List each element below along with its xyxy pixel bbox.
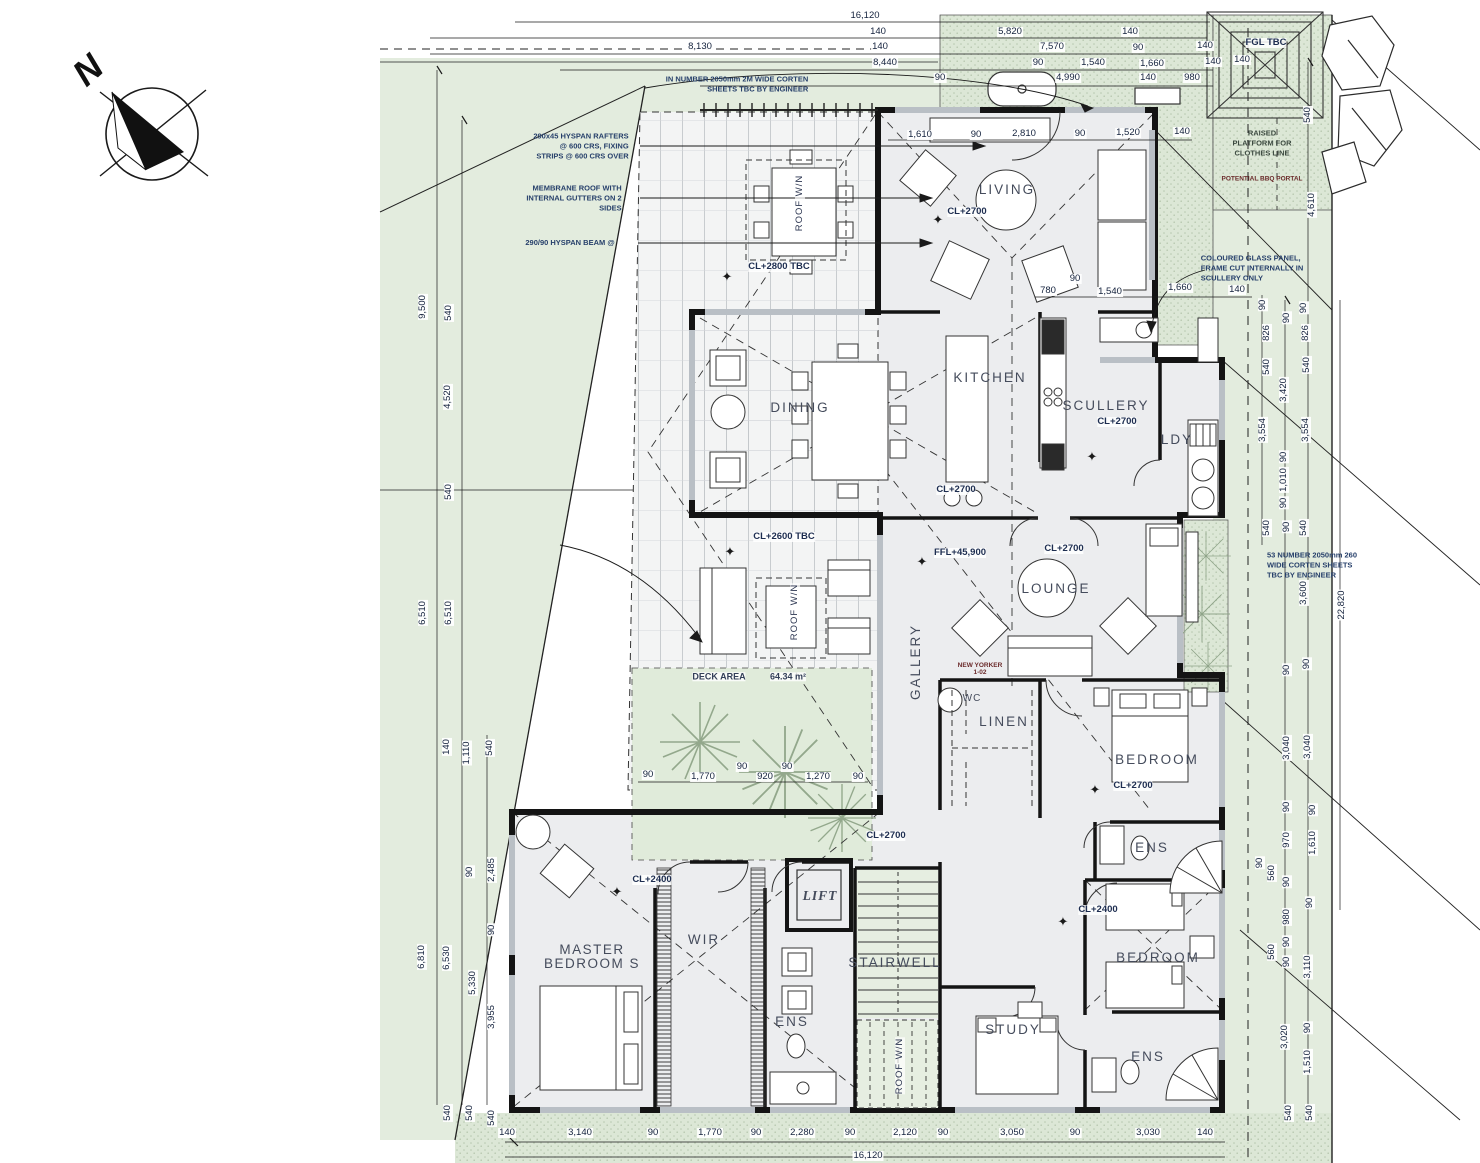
dimension-label: 1,540 xyxy=(1080,58,1106,68)
note-fgl-tbc: FGL TBC xyxy=(1246,38,1287,48)
dimension-label: 540 xyxy=(1262,519,1272,537)
dimension-label: 90 xyxy=(934,73,947,83)
dimension-label: 780 xyxy=(1039,286,1057,296)
dimension-label: 90 xyxy=(1258,299,1268,312)
dimension-label: 90 xyxy=(1282,876,1292,889)
ceiling-level-label: CL+2600 TBC xyxy=(753,532,815,542)
ceiling-level-label: CL+2700 xyxy=(1097,417,1136,427)
floor-plan-page: NLIVINGKITCHENDININGSCULLERYLDYLOUNGEGAL… xyxy=(0,0,1480,1163)
dimension-label: 90 xyxy=(1074,129,1087,139)
dimension-label: 3,020 xyxy=(1280,1024,1290,1050)
ceiling-level-label: CL+2700 xyxy=(936,485,975,495)
room-label-living: LIVING xyxy=(979,183,1035,197)
roof-window-label: ROOF W/N xyxy=(895,1038,905,1095)
dimension-label: 6,530 xyxy=(442,945,452,971)
dimension-label: 826 xyxy=(1262,324,1272,342)
dimension-label: 90 xyxy=(781,762,794,772)
star-symbol: ✦ xyxy=(1090,783,1101,797)
dimension-label: 3,554 xyxy=(1258,417,1268,443)
dimension-label: 1,520 xyxy=(1115,128,1141,138)
dimension-label: 540 xyxy=(444,304,454,322)
dimension-label: 5,330 xyxy=(468,970,478,996)
star-symbol: ✦ xyxy=(1087,450,1098,464)
ceiling-level-label: CL+2400 xyxy=(632,875,671,885)
dimension-label: 140 xyxy=(442,738,452,756)
dimension-label: 90 xyxy=(1282,664,1292,677)
dimension-label: 4,520 xyxy=(443,384,453,410)
dimension-label: 3,110 xyxy=(1303,954,1313,979)
dimension-label: 90 xyxy=(1282,936,1292,949)
dimension-label: 540 xyxy=(1303,106,1313,124)
dimension-label: 90 xyxy=(844,1128,857,1138)
dimension-label: 540 xyxy=(1262,358,1272,376)
dimension-label: 16,120 xyxy=(852,1151,883,1161)
dimension-label: 4,610 xyxy=(1307,192,1317,218)
dimension-label: 3,140 xyxy=(567,1128,593,1138)
dimension-label: 540 xyxy=(1284,1104,1294,1122)
dimension-label: 540 xyxy=(465,1104,475,1122)
ceiling-level-label: FFL+45,900 xyxy=(934,548,986,558)
note-membrane-roof: MEMBRANE ROOF WITH INTERNAL GUTTERS ON 2… xyxy=(526,183,621,212)
roof-window-label: ROOF W/N xyxy=(795,175,805,232)
dimension-label: 540 xyxy=(1299,519,1309,537)
dimension-label: 8,130 xyxy=(687,42,713,52)
dimension-label: 90 xyxy=(750,1128,763,1138)
dimension-label: 140 xyxy=(1196,41,1214,51)
dimension-label: 3,554 xyxy=(1301,417,1311,443)
ceiling-level-label: CL+2700 xyxy=(947,207,986,217)
dimension-label: 140 xyxy=(1139,73,1157,83)
ceiling-level-label: CL+2700 xyxy=(1113,781,1152,791)
note-new-yorker: NEW YORKER 1-02 xyxy=(958,663,1003,677)
dimension-label: 90 xyxy=(1299,302,1309,315)
room-label-ens-2: ENS xyxy=(1131,1050,1165,1064)
dimension-label: 970 xyxy=(1282,831,1292,849)
dimension-label: 540 xyxy=(1302,356,1312,374)
dimension-label: 9,500 xyxy=(418,294,428,320)
dimension-label: 1,610 xyxy=(907,130,933,140)
dimension-label: 5,820 xyxy=(997,27,1023,37)
room-label-dining: DINING xyxy=(770,401,829,415)
dimension-label: 3,040 xyxy=(1303,734,1313,760)
dimension-label: 90 xyxy=(1303,1022,1313,1035)
dimension-label: 6,810 xyxy=(417,944,427,970)
room-label-lounge: LOUNGE xyxy=(1021,582,1090,596)
dimension-label: 22,820 xyxy=(1337,589,1347,620)
dimension-label: 90 xyxy=(1282,312,1292,325)
room-label-kitchen: KITCHEN xyxy=(953,371,1026,385)
dimension-label: 90 xyxy=(1302,658,1312,671)
label-layer: NLIVINGKITCHENDININGSCULLERYLDYLOUNGEGAL… xyxy=(0,0,1480,1163)
ceiling-level-label: CL+2800 TBC xyxy=(748,262,810,272)
room-label-bedroom-2: BEDROOM xyxy=(1116,951,1200,965)
dimension-label: 90 xyxy=(1282,956,1292,969)
room-label-gallery: GALLERY xyxy=(909,624,923,700)
dimension-label: 90 xyxy=(642,770,655,780)
dimension-label: 540 xyxy=(485,739,495,757)
dimension-label: 90 xyxy=(647,1128,660,1138)
north-label: N xyxy=(66,47,111,92)
dimension-label: 140 xyxy=(498,1128,516,1138)
room-label-scullery: SCULLERY xyxy=(1062,399,1149,413)
dimension-label: 90 xyxy=(736,762,749,772)
dimension-label: 3,420 xyxy=(1279,377,1289,403)
star-symbol: ✦ xyxy=(1058,915,1069,929)
dimension-label: 140 xyxy=(1233,55,1251,65)
dimension-label: 2,485 xyxy=(487,857,497,883)
dimension-label: 3,955 xyxy=(487,1004,497,1030)
dimension-label: 1,660 xyxy=(1167,283,1193,293)
roof-window-label: ROOF W/N xyxy=(790,584,800,641)
dimension-label: 1,110 xyxy=(462,740,472,765)
room-label-master-bedroom: MASTER BEDROOM S xyxy=(544,943,640,971)
dimension-label: 980 xyxy=(1282,908,1292,926)
note-rafters: 290x45 HYSPAN RAFTERS @ 600 CRS, FIXING … xyxy=(533,131,628,160)
dimension-label: 540 xyxy=(487,1109,497,1127)
dimension-label: 1,540 xyxy=(1097,287,1123,297)
deck-area-value: 64.34 m² xyxy=(770,672,806,681)
dimension-label: 7,570 xyxy=(1039,42,1065,52)
room-label-ens-1: ENS xyxy=(1135,841,1169,855)
room-label-study: STUDY xyxy=(985,1023,1041,1037)
dimension-label: 540 xyxy=(443,1104,453,1122)
deck-area-label: DECK AREA xyxy=(692,672,745,681)
dimension-label: 90 xyxy=(1279,451,1289,464)
dimension-label: 140 xyxy=(1204,57,1222,67)
room-label-bedroom-1: BEDROOM xyxy=(1115,753,1199,767)
dimension-label: 6,510 xyxy=(418,600,428,626)
room-label-stairwell: STAIRWELL xyxy=(848,956,941,970)
dimension-label: 90 xyxy=(1032,58,1045,68)
dimension-label: 540 xyxy=(1305,1104,1315,1122)
dimension-label: 1,770 xyxy=(697,1128,723,1138)
dimension-label: 4,990 xyxy=(1055,73,1081,83)
dimension-label: 540 xyxy=(444,483,454,501)
dimension-label: 8,440 xyxy=(872,58,898,68)
note-corten-sheets-right: 53 NUMBER 2050mm 260 WIDE CORTEN SHEETS … xyxy=(1267,550,1357,579)
dimension-label: 90 xyxy=(1282,521,1292,534)
star-symbol: ✦ xyxy=(725,545,736,559)
dimension-label: 2,280 xyxy=(789,1128,815,1138)
dimension-label: 2,810 xyxy=(1011,129,1037,139)
dimension-label: 1,660 xyxy=(1139,59,1165,69)
room-label-ens-master: ENS xyxy=(775,1015,809,1029)
dimension-label: 90 xyxy=(1282,801,1292,814)
dimension-label: 90 xyxy=(970,130,983,140)
ceiling-level-label: CL+2700 xyxy=(866,831,905,841)
dimension-label: 140 xyxy=(871,42,889,52)
dimension-label: 90 xyxy=(1279,497,1289,510)
note-coloured-glass: COLOURED GLASS PANEL, FRAME CUT INTERNAL… xyxy=(1201,253,1304,282)
dimension-label: 826 xyxy=(1301,324,1311,342)
dimension-label: 6,510 xyxy=(444,600,454,626)
dimension-label: 90 xyxy=(1305,897,1315,910)
dimension-label: 90 xyxy=(1069,1128,1082,1138)
dimension-label: 560 xyxy=(1267,943,1277,961)
dimension-label: 140 xyxy=(1196,1128,1214,1138)
room-label-linen: LINEN xyxy=(979,715,1029,729)
dimension-label: 90 xyxy=(465,866,475,879)
dimension-label: 90 xyxy=(487,924,497,937)
star-symbol: ✦ xyxy=(612,885,623,899)
star-symbol: ✦ xyxy=(933,213,944,227)
dimension-label: 560 xyxy=(1267,864,1277,882)
dimension-label: 90 xyxy=(1308,804,1318,817)
dimension-label: 140 xyxy=(1173,127,1191,137)
dimension-label: 16,120 xyxy=(849,11,880,21)
dimension-label: 140 xyxy=(1121,27,1139,37)
dimension-label: 1,610 xyxy=(1308,830,1318,856)
dimension-label: 2,120 xyxy=(892,1128,918,1138)
room-label-wc: WC xyxy=(963,694,982,705)
room-label-wir: WIR xyxy=(688,933,720,947)
dimension-label: 3,040 xyxy=(1282,735,1292,761)
dimension-label: 90 xyxy=(1069,274,1082,284)
dimension-label: 1,270 xyxy=(805,772,831,782)
star-symbol: ✦ xyxy=(917,555,928,569)
dimension-label: 140 xyxy=(869,27,887,37)
note-corten-sheets-top: IN NUMBER 2050mm 2M WIDE CORTEN SHEETS T… xyxy=(666,74,809,94)
room-label-lift: LIFT xyxy=(803,889,838,903)
dimension-label: 90 xyxy=(852,772,865,782)
note-potential-portal: POTENTIAL BBQ PORTAL xyxy=(1221,177,1302,184)
note-hyspan-beam: 290/90 HYSPAN BEAM @ xyxy=(525,238,614,248)
dimension-label: 140 xyxy=(1228,285,1246,295)
dimension-label: 920 xyxy=(756,772,774,782)
dimension-label: 3,030 xyxy=(1135,1128,1161,1138)
dimension-label: 90 xyxy=(1255,857,1265,870)
dimension-label: 3,050 xyxy=(999,1128,1025,1138)
ceiling-level-label: CL+2400 xyxy=(1078,905,1117,915)
dimension-label: 1,770 xyxy=(690,772,716,782)
dimension-label: 3,600 xyxy=(1299,580,1309,606)
dimension-label: 980 xyxy=(1183,73,1201,83)
ceiling-level-label: CL+2700 xyxy=(1044,544,1083,554)
dimension-label: 1,010 xyxy=(1279,467,1289,493)
dimension-label: 1,510 xyxy=(1303,1049,1313,1075)
star-symbol: ✦ xyxy=(722,270,733,284)
dimension-label: 90 xyxy=(1132,43,1145,53)
dimension-label: 90 xyxy=(937,1128,950,1138)
room-label-ldy: LDY xyxy=(1161,433,1193,447)
note-clothes-line: RAISED PLATFORM FOR CLOTHES LINE xyxy=(1232,128,1291,157)
